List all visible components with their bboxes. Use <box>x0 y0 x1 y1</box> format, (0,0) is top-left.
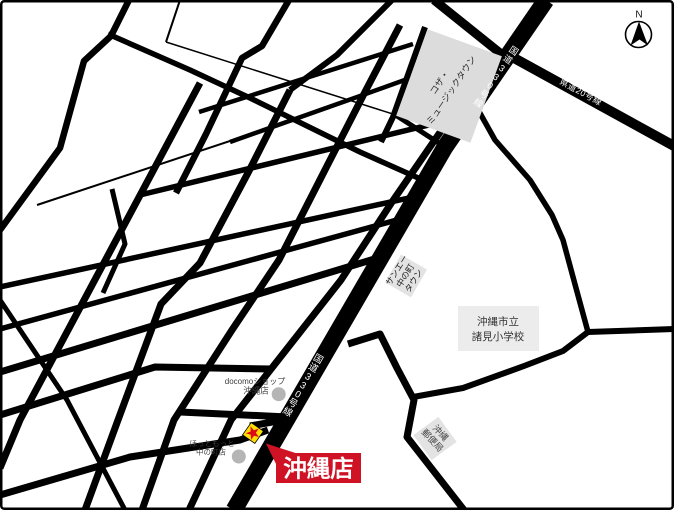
svg-text:諸見小学校: 諸見小学校 <box>472 330 525 343</box>
svg-text:沖縄店: 沖縄店 <box>243 386 269 396</box>
svg-text:N: N <box>635 10 642 21</box>
svg-text:沖縄市立: 沖縄市立 <box>477 315 519 328</box>
svg-text:中の町店: 中の町店 <box>196 447 226 457</box>
svg-text:沖縄店: 沖縄店 <box>283 455 354 482</box>
